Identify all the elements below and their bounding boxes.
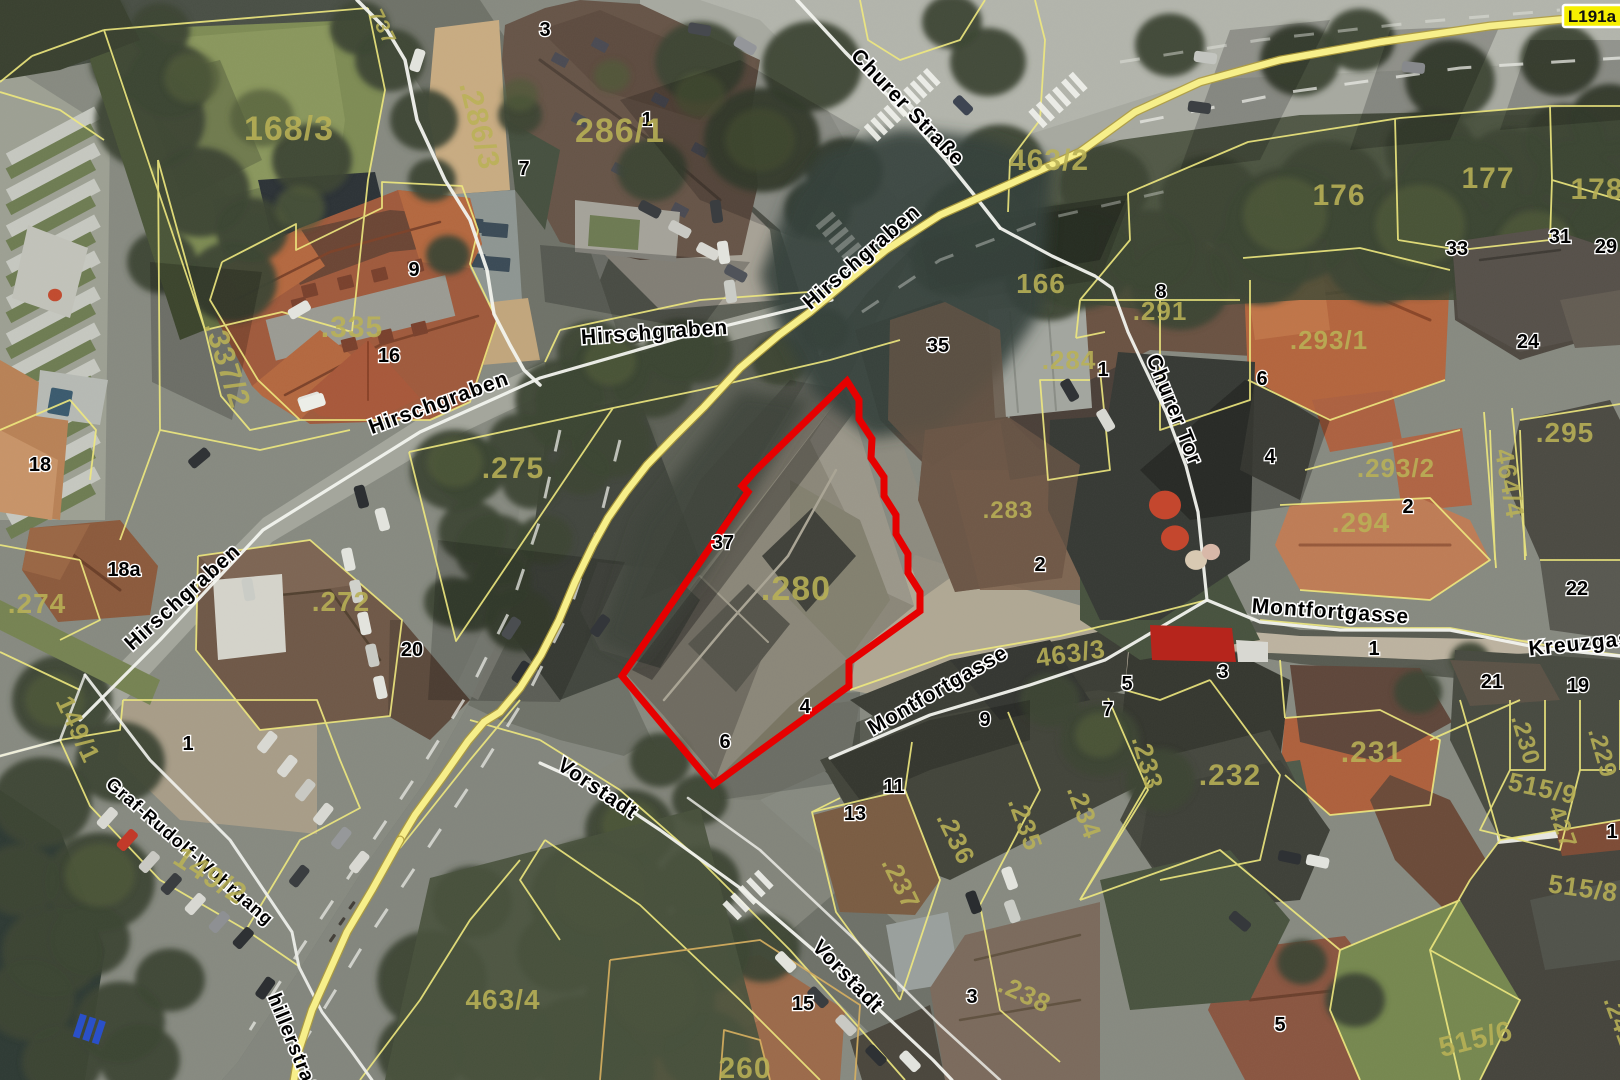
svg-text:33: 33 xyxy=(1446,238,1468,260)
svg-text:18a: 18a xyxy=(107,559,141,581)
svg-text:.335: .335 xyxy=(321,311,383,344)
svg-text:13: 13 xyxy=(844,803,866,825)
svg-text:.295: .295 xyxy=(1536,417,1595,448)
svg-text:3: 3 xyxy=(1217,661,1228,683)
svg-text:4: 4 xyxy=(799,696,811,718)
svg-text:.231: .231 xyxy=(1341,736,1403,769)
svg-text:.294: .294 xyxy=(1332,507,1391,538)
svg-text:35: 35 xyxy=(927,335,949,357)
svg-text:37: 37 xyxy=(712,532,734,554)
svg-text:463/4: 463/4 xyxy=(465,984,540,1015)
svg-text:4: 4 xyxy=(1264,446,1276,468)
svg-text:.284: .284 xyxy=(1042,345,1097,375)
svg-text:7: 7 xyxy=(518,158,529,180)
svg-text:286/1: 286/1 xyxy=(575,112,665,150)
svg-text:22: 22 xyxy=(1566,578,1588,600)
svg-text:5: 5 xyxy=(1121,673,1132,695)
svg-text:.283: .283 xyxy=(983,497,1034,524)
svg-text:463/2: 463/2 xyxy=(1009,144,1089,177)
svg-text:6: 6 xyxy=(719,731,730,753)
svg-text:1: 1 xyxy=(182,733,193,755)
svg-text:3: 3 xyxy=(966,986,977,1008)
svg-text:.274: .274 xyxy=(8,588,67,619)
svg-text:15: 15 xyxy=(792,993,814,1015)
svg-text:.291: .291 xyxy=(1133,296,1188,326)
svg-text:19: 19 xyxy=(1567,675,1589,697)
svg-text:L191a: L191a xyxy=(1568,7,1617,26)
svg-text:2: 2 xyxy=(1402,496,1413,518)
svg-text:18: 18 xyxy=(29,454,51,476)
svg-text:176: 176 xyxy=(1312,179,1365,212)
svg-text:.232: .232 xyxy=(1199,759,1261,792)
svg-text:.280: .280 xyxy=(761,570,831,608)
svg-text:7: 7 xyxy=(1102,699,1113,721)
svg-text:1: 1 xyxy=(1097,359,1108,381)
svg-text:31: 31 xyxy=(1549,226,1571,248)
svg-text:9: 9 xyxy=(408,259,419,281)
svg-text:3: 3 xyxy=(539,19,550,41)
svg-text:16: 16 xyxy=(378,345,400,367)
svg-text:5: 5 xyxy=(1274,1014,1285,1036)
svg-text:168/3: 168/3 xyxy=(244,110,334,148)
svg-text:20: 20 xyxy=(401,639,423,661)
svg-text:1: 1 xyxy=(1368,638,1379,660)
svg-text:177: 177 xyxy=(1461,162,1514,195)
svg-text:11: 11 xyxy=(883,776,904,798)
svg-text:1: 1 xyxy=(1606,821,1617,843)
svg-text:166: 166 xyxy=(1016,268,1066,299)
svg-text:178: 178 xyxy=(1570,173,1620,206)
svg-text:21: 21 xyxy=(1481,671,1503,693)
svg-text:29: 29 xyxy=(1595,236,1617,258)
svg-text:260: 260 xyxy=(718,1052,771,1080)
svg-text:24: 24 xyxy=(1517,331,1540,353)
svg-text:2: 2 xyxy=(1034,554,1045,576)
svg-text:6: 6 xyxy=(1256,368,1267,390)
svg-text:.293/1: .293/1 xyxy=(1290,325,1368,355)
svg-text:.272: .272 xyxy=(312,586,371,617)
svg-text:.275: .275 xyxy=(482,452,544,485)
svg-text:9: 9 xyxy=(979,709,990,731)
svg-text:.293/2: .293/2 xyxy=(1357,453,1435,483)
